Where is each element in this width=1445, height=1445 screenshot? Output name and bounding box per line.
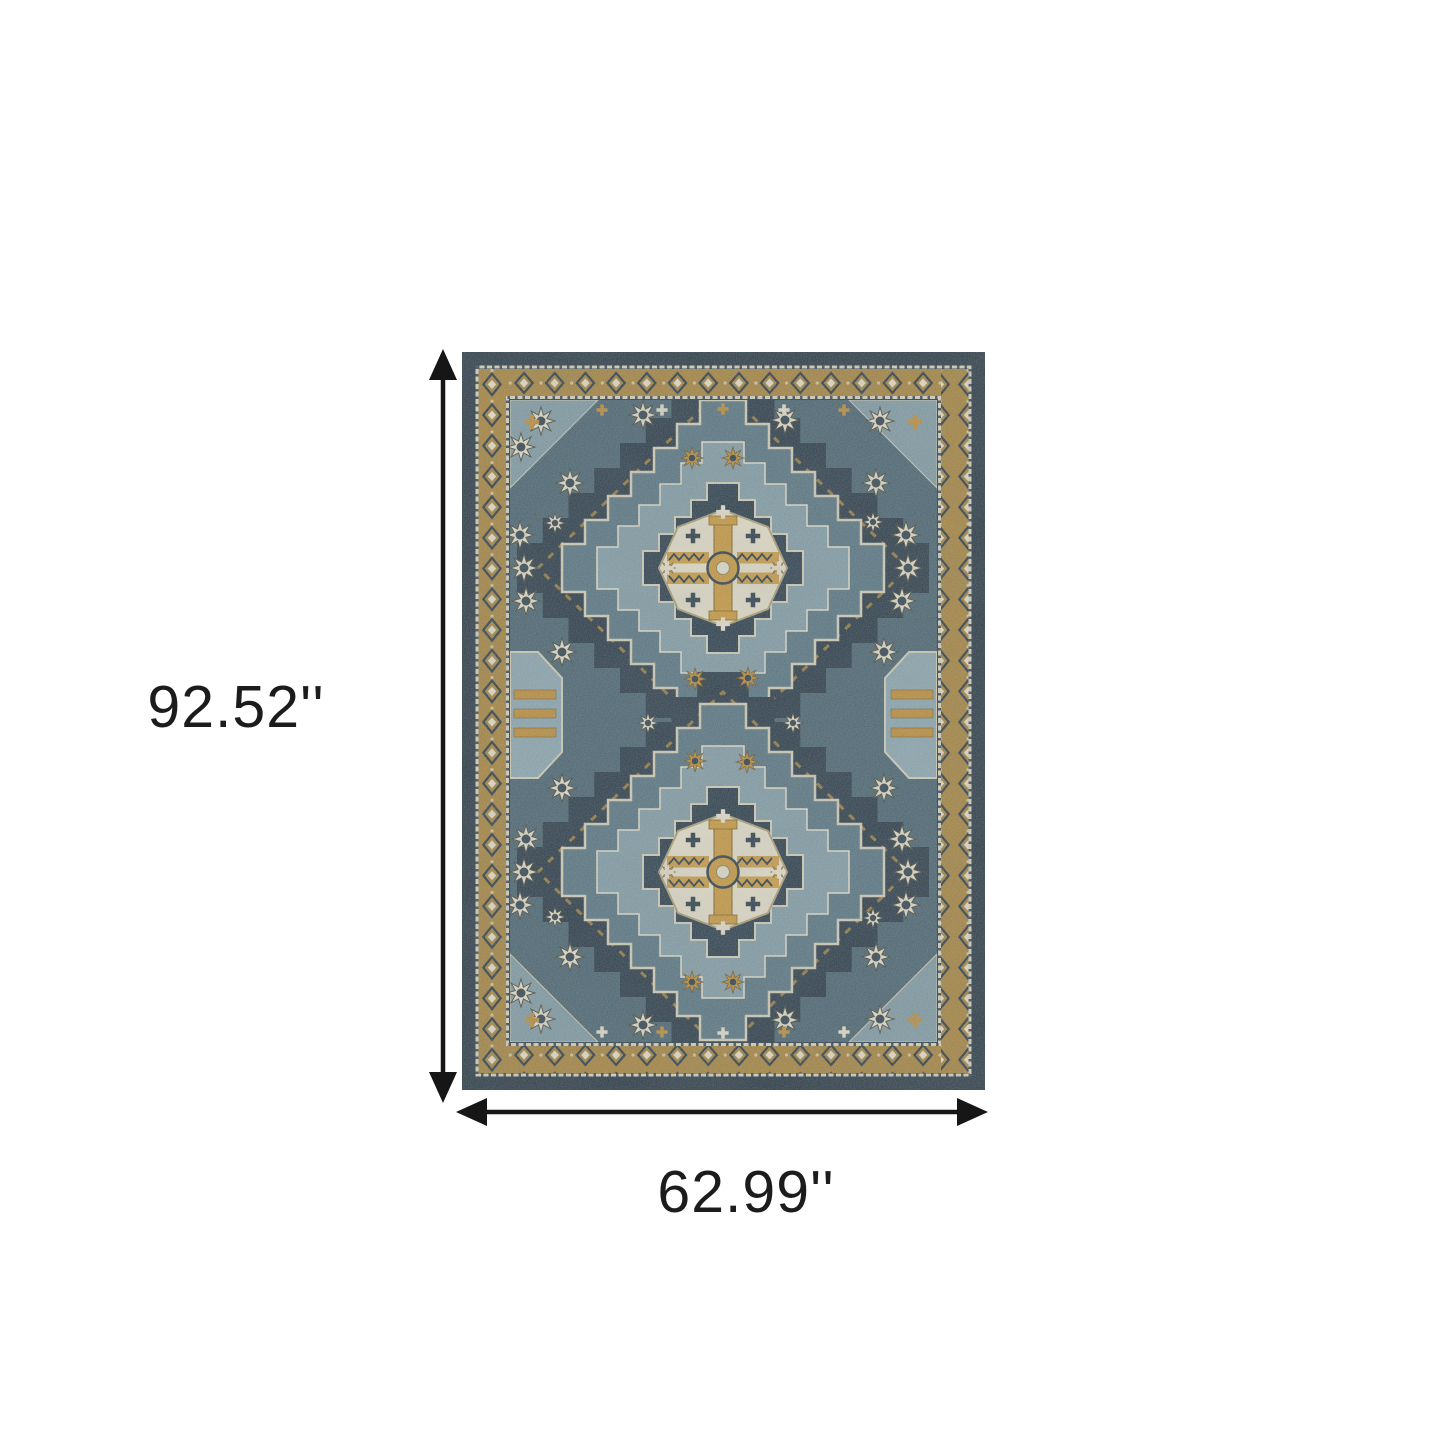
rug-image [462,352,985,1090]
height-dimension-arrow [429,349,457,1103]
width-dimension-arrow [456,1098,988,1126]
height-dimension-label: 92.52'' [147,673,324,741]
width-dimension-label: 62.99'' [657,1158,834,1226]
product-dimension-figure: 92.52'' 62.99'' [0,0,1445,1445]
